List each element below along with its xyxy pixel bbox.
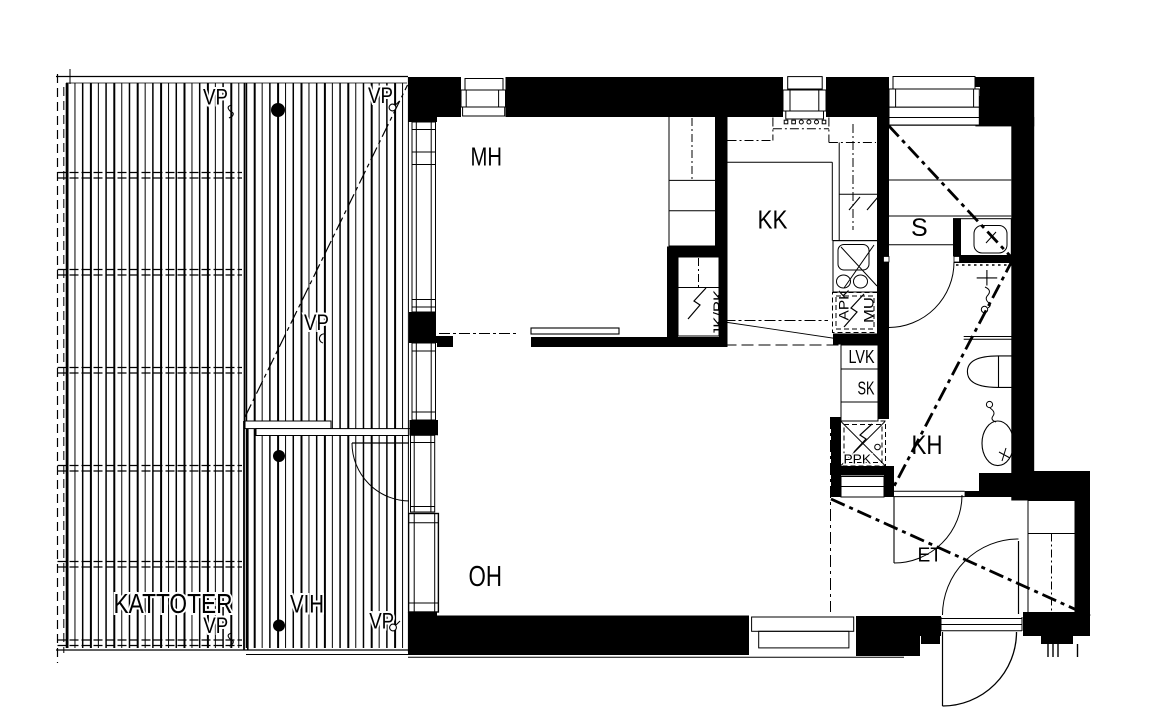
svg-text:KK: KK [758,205,789,235]
svg-text:ET: ET [918,544,943,567]
svg-text:KH: KH [912,430,943,460]
svg-text:VP: VP [203,613,228,638]
svg-text:VIH: VIH [290,591,324,619]
svg-text:VP: VP [304,310,329,335]
svg-text:JK/PK: JK/PK [710,289,726,336]
svg-text:SK: SK [858,379,875,399]
svg-text:S: S [911,214,928,242]
svg-text:LVK: LVK [849,347,875,367]
svg-text:MH: MH [471,142,503,172]
svg-text:OH: OH [469,561,503,593]
svg-text:VP: VP [203,85,228,110]
svg-text:PPK: PPK [844,453,872,467]
svg-text:APK: APK [836,289,852,321]
svg-text:MU: MU [861,297,877,323]
svg-text:VP: VP [368,83,393,108]
